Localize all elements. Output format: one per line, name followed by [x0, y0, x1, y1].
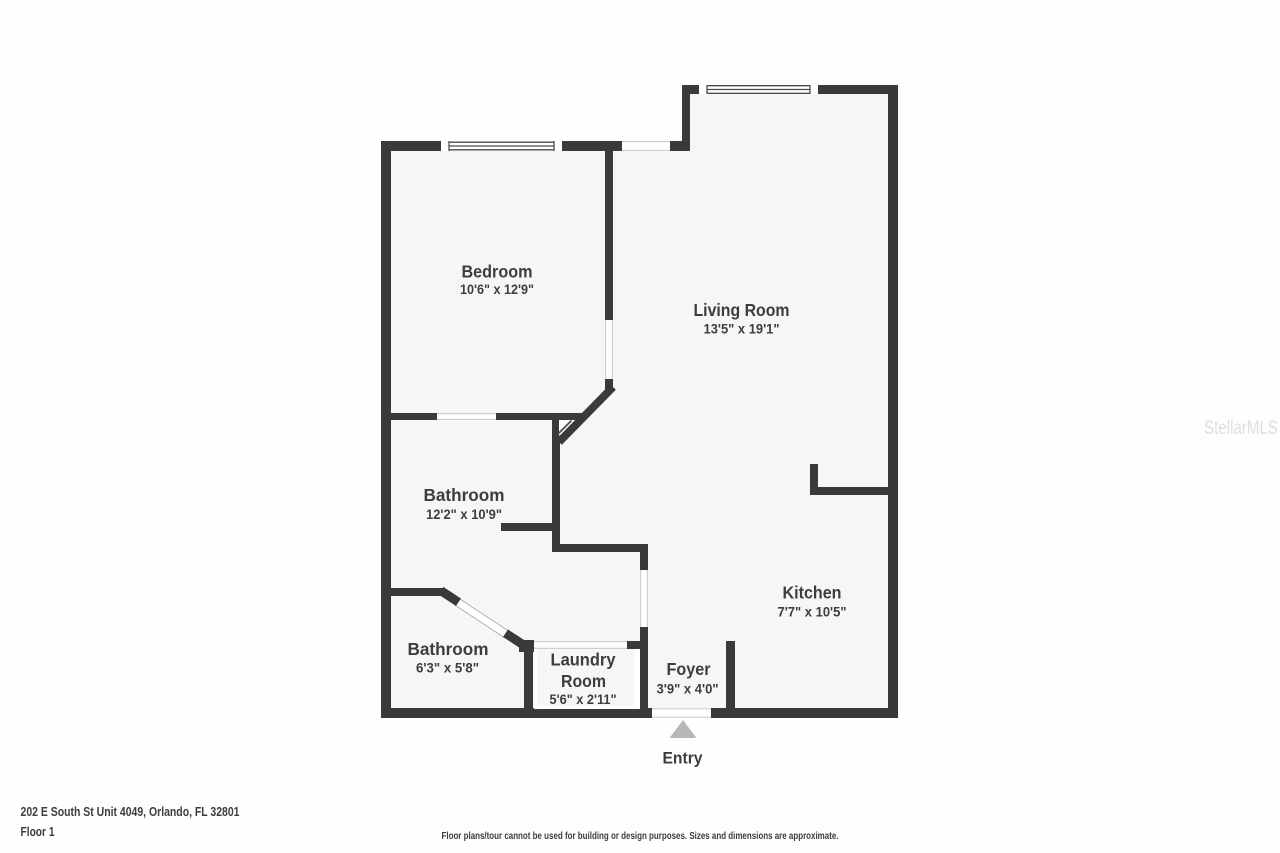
- svg-text:Foyer: Foyer: [667, 659, 711, 679]
- svg-text:Bedroom: Bedroom: [462, 262, 533, 282]
- svg-text:6'3" x 5'8": 6'3" x 5'8": [416, 661, 479, 676]
- svg-text:Entry: Entry: [663, 750, 704, 768]
- svg-text:10'6" x 12'9": 10'6" x 12'9": [460, 282, 534, 297]
- svg-text:Living Room: Living Room: [694, 300, 790, 320]
- svg-text:Bathroom: Bathroom: [408, 639, 489, 659]
- svg-text:StellarMLS: StellarMLS: [1204, 418, 1278, 439]
- svg-text:12'2" x 10'9": 12'2" x 10'9": [426, 507, 502, 522]
- svg-text:Floor plans/tour cannot be use: Floor plans/tour cannot be used for buil…: [442, 831, 839, 842]
- svg-text:Kitchen: Kitchen: [783, 583, 842, 603]
- svg-text:3'9" x 4'0": 3'9" x 4'0": [657, 682, 719, 697]
- svg-text:5'6" x 2'11": 5'6" x 2'11": [550, 692, 617, 707]
- svg-text:13'5" x 19'1": 13'5" x 19'1": [704, 322, 780, 337]
- svg-text:Room: Room: [561, 671, 606, 691]
- svg-text:202 E South St Unit 4049, Orla: 202 E South St Unit 4049, Orlando, FL 32…: [21, 805, 240, 819]
- svg-text:Floor 1: Floor 1: [21, 825, 55, 839]
- svg-text:7'7" x 10'5": 7'7" x 10'5": [778, 605, 847, 620]
- svg-text:Laundry: Laundry: [551, 650, 616, 670]
- svg-text:Bathroom: Bathroom: [424, 485, 505, 505]
